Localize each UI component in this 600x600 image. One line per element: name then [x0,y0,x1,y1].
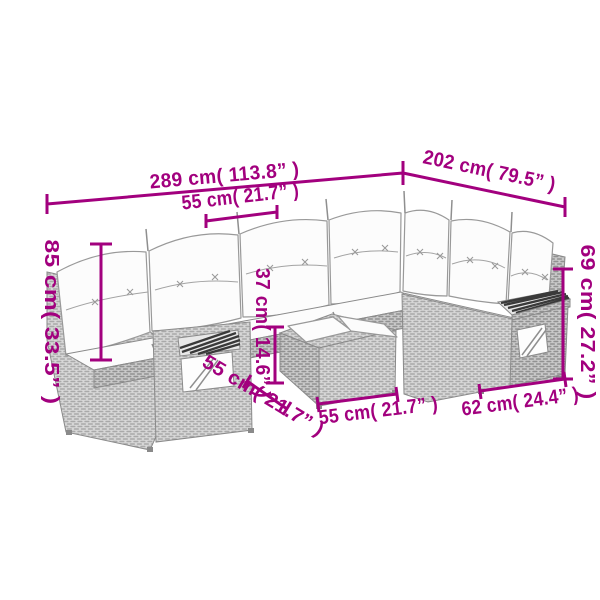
product-dimension-diagram: 289 cm( 113.8” ) 202 cm( 79.5” ) 55 cm( … [0,0,600,600]
dimension-back-height-label: 85 cm( 33.5” ) [40,240,62,405]
back-cushion [329,211,401,304]
back-cushion [403,210,449,296]
dimension-arm-height-label: 69 cm( 27.2” ) [576,245,598,400]
